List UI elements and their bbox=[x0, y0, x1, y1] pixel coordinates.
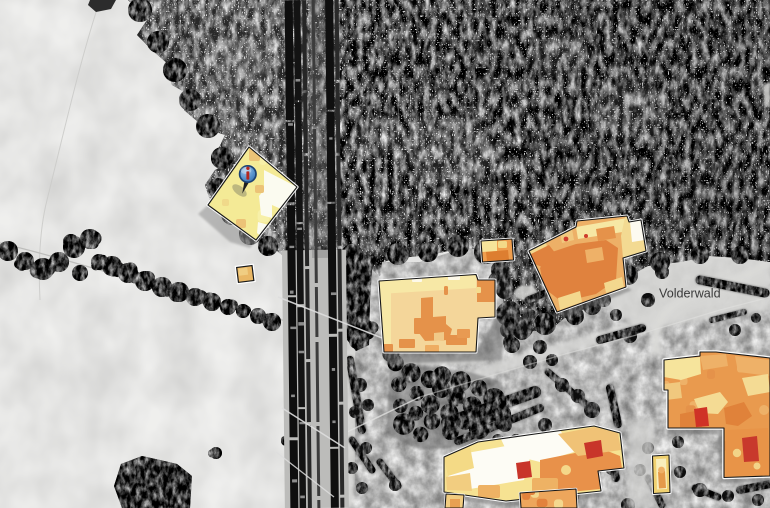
svg-text:Volderwald: Volderwald bbox=[659, 287, 721, 301]
